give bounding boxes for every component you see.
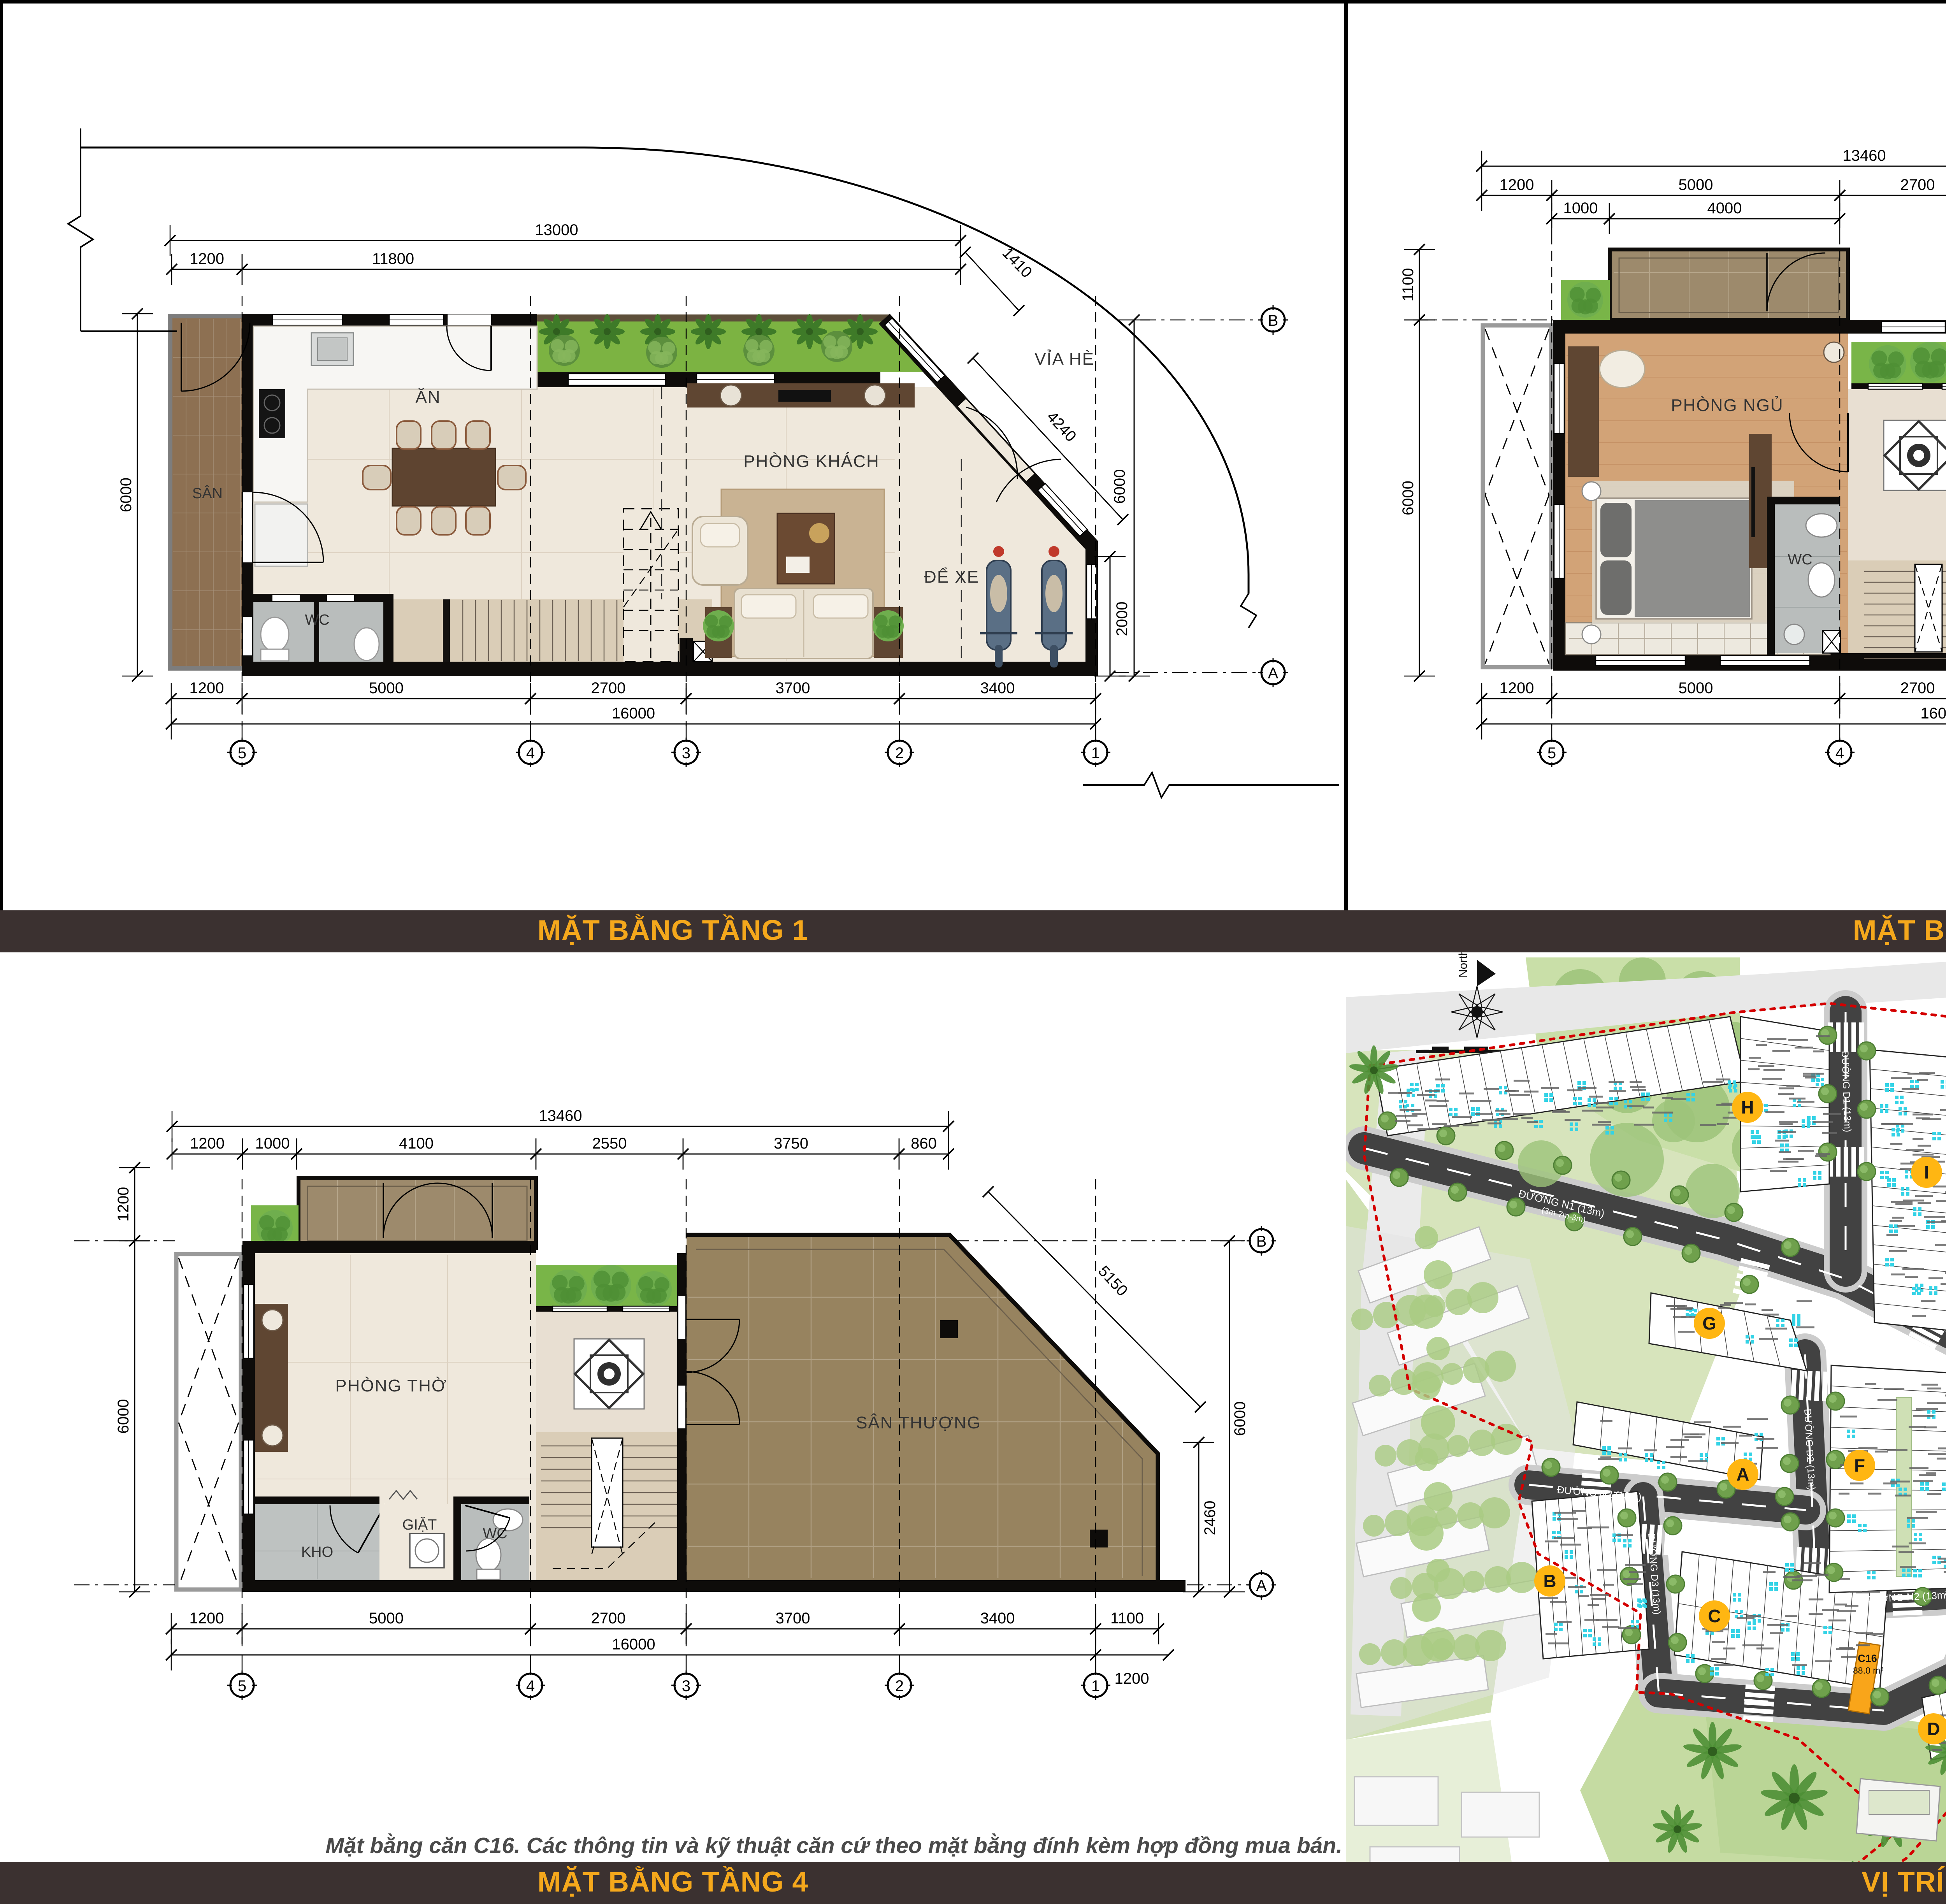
svg-text:PHÒNG NGỦ: PHÒNG NGỦ	[1671, 395, 1783, 415]
svg-text:2700: 2700	[1900, 680, 1935, 697]
svg-text:B: B	[1543, 1571, 1556, 1591]
svg-text:1200: 1200	[190, 1135, 225, 1152]
svg-text:WC: WC	[305, 612, 329, 628]
svg-text:5: 5	[1547, 745, 1556, 762]
svg-text:North: North	[1457, 952, 1470, 978]
svg-text:4: 4	[526, 1677, 535, 1695]
svg-text:6000: 6000	[1400, 481, 1417, 515]
svg-text:88.0 m²: 88.0 m²	[1853, 1665, 1883, 1676]
svg-text:5000: 5000	[369, 680, 404, 697]
svg-text:2700: 2700	[1900, 176, 1935, 193]
svg-text:1200: 1200	[190, 1610, 224, 1627]
svg-text:3400: 3400	[980, 680, 1015, 697]
svg-text:5: 5	[238, 745, 246, 762]
svg-text:GIẶT: GIẶT	[402, 1516, 437, 1533]
svg-text:5150: 5150	[1095, 1263, 1131, 1300]
svg-text:4: 4	[1835, 745, 1844, 762]
svg-text:2: 2	[895, 745, 904, 762]
svg-text:6000: 6000	[1231, 1402, 1249, 1436]
svg-text:13460: 13460	[1842, 147, 1886, 164]
svg-text:6000: 6000	[115, 1399, 132, 1434]
svg-text:5000: 5000	[1679, 680, 1713, 697]
svg-text:2000: 2000	[1114, 602, 1131, 636]
svg-text:6000: 6000	[1111, 469, 1128, 504]
svg-text:3700: 3700	[776, 1610, 810, 1627]
svg-text:KHO: KHO	[301, 1544, 333, 1560]
svg-text:C: C	[1708, 1606, 1721, 1626]
svg-text:3750: 3750	[774, 1135, 808, 1152]
svg-text:VỈA HÈ: VỈA HÈ	[1034, 349, 1094, 369]
svg-text:SÂN THƯỢNG: SÂN THƯỢNG	[856, 1413, 981, 1432]
svg-text:3400: 3400	[980, 1610, 1015, 1627]
svg-text:A: A	[1736, 1464, 1749, 1484]
svg-text:WC: WC	[1788, 552, 1812, 568]
svg-text:11800: 11800	[372, 250, 414, 267]
svg-text:SÂN: SÂN	[192, 485, 223, 502]
svg-text:3: 3	[682, 1677, 690, 1695]
svg-text:1000: 1000	[255, 1135, 290, 1152]
svg-text:2460: 2460	[1201, 1501, 1219, 1535]
svg-text:2700: 2700	[591, 1610, 626, 1627]
svg-text:1100: 1100	[1110, 1610, 1144, 1627]
svg-text:6000: 6000	[118, 478, 135, 512]
svg-text:1200: 1200	[190, 680, 224, 697]
svg-text:1200: 1200	[1500, 176, 1534, 193]
svg-text:4000: 4000	[1707, 200, 1742, 217]
svg-text:16000: 16000	[1920, 705, 1946, 722]
svg-text:3: 3	[682, 745, 690, 762]
svg-text:5: 5	[238, 1677, 246, 1695]
svg-text:G: G	[1702, 1313, 1716, 1333]
svg-text:2: 2	[895, 1677, 904, 1695]
svg-text:5000: 5000	[369, 1610, 404, 1627]
svg-text:4100: 4100	[399, 1135, 434, 1152]
svg-text:A: A	[1256, 1577, 1267, 1594]
svg-text:B: B	[1256, 1233, 1267, 1250]
svg-text:B: B	[1268, 312, 1279, 329]
svg-text:2550: 2550	[592, 1135, 627, 1152]
svg-text:H: H	[1741, 1097, 1754, 1117]
svg-text:ĐỂ XE: ĐỂ XE	[924, 567, 979, 587]
svg-text:1200: 1200	[1115, 1670, 1149, 1687]
svg-text:1: 1	[1091, 1677, 1100, 1695]
svg-text:ĂN: ĂN	[415, 388, 441, 407]
svg-text:1200: 1200	[1500, 680, 1534, 697]
svg-text:1200: 1200	[190, 250, 224, 267]
svg-text:1200: 1200	[115, 1187, 132, 1222]
svg-text:13460: 13460	[539, 1107, 582, 1124]
svg-text:F: F	[1854, 1455, 1865, 1475]
svg-text:13000: 13000	[535, 221, 578, 239]
svg-text:I: I	[1924, 1162, 1929, 1182]
svg-text:WC: WC	[483, 1525, 507, 1542]
svg-text:3700: 3700	[776, 680, 810, 697]
svg-text:PHÒNG KHÁCH: PHÒNG KHÁCH	[743, 452, 880, 471]
svg-text:16000: 16000	[612, 705, 655, 722]
svg-text:1000: 1000	[1563, 200, 1598, 217]
svg-text:5000: 5000	[1679, 176, 1713, 193]
svg-text:1100: 1100	[1400, 268, 1417, 301]
svg-text:2700: 2700	[591, 680, 626, 697]
svg-text:860: 860	[911, 1135, 937, 1152]
svg-text:16000: 16000	[612, 1636, 655, 1653]
svg-text:4: 4	[526, 745, 535, 762]
svg-text:PHÒNG THỜ: PHÒNG THỜ	[335, 1376, 447, 1395]
svg-text:C16: C16	[1858, 1653, 1877, 1664]
svg-text:D: D	[1927, 1719, 1940, 1739]
svg-text:1: 1	[1091, 745, 1100, 762]
svg-text:A: A	[1268, 665, 1279, 682]
